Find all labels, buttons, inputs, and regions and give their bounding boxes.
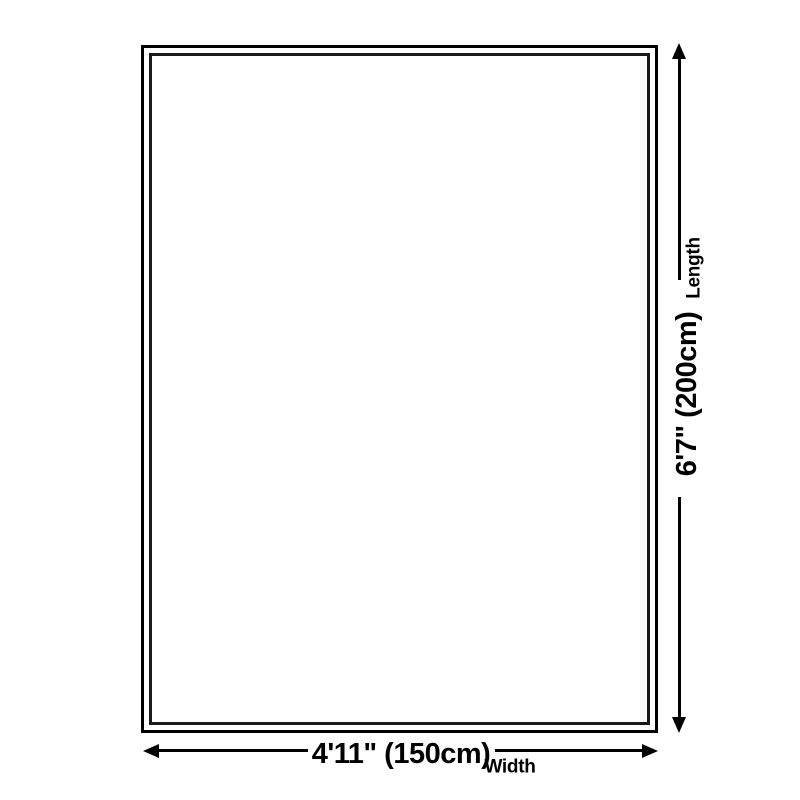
width-value-label: 4'11" (150cm): [312, 739, 491, 771]
rug-size-diagram: Length 6'7" (200cm) 4'11" (150cm) Width: [0, 0, 800, 800]
arrow-down-icon: [672, 717, 686, 733]
width-axis-label: Width: [484, 758, 535, 779]
arrow-right-icon: [642, 744, 658, 758]
length-value-label: 6'7" (200cm): [672, 312, 704, 477]
rug-inner-outline: [149, 53, 650, 725]
rug-outline: [141, 45, 658, 733]
width-dimension-line-right: [495, 749, 644, 752]
length-axis-label: Length: [685, 237, 706, 299]
length-dimension-line-upper: [678, 57, 681, 280]
length-dimension-line-lower: [678, 497, 681, 718]
width-dimension-line-left: [157, 749, 308, 752]
